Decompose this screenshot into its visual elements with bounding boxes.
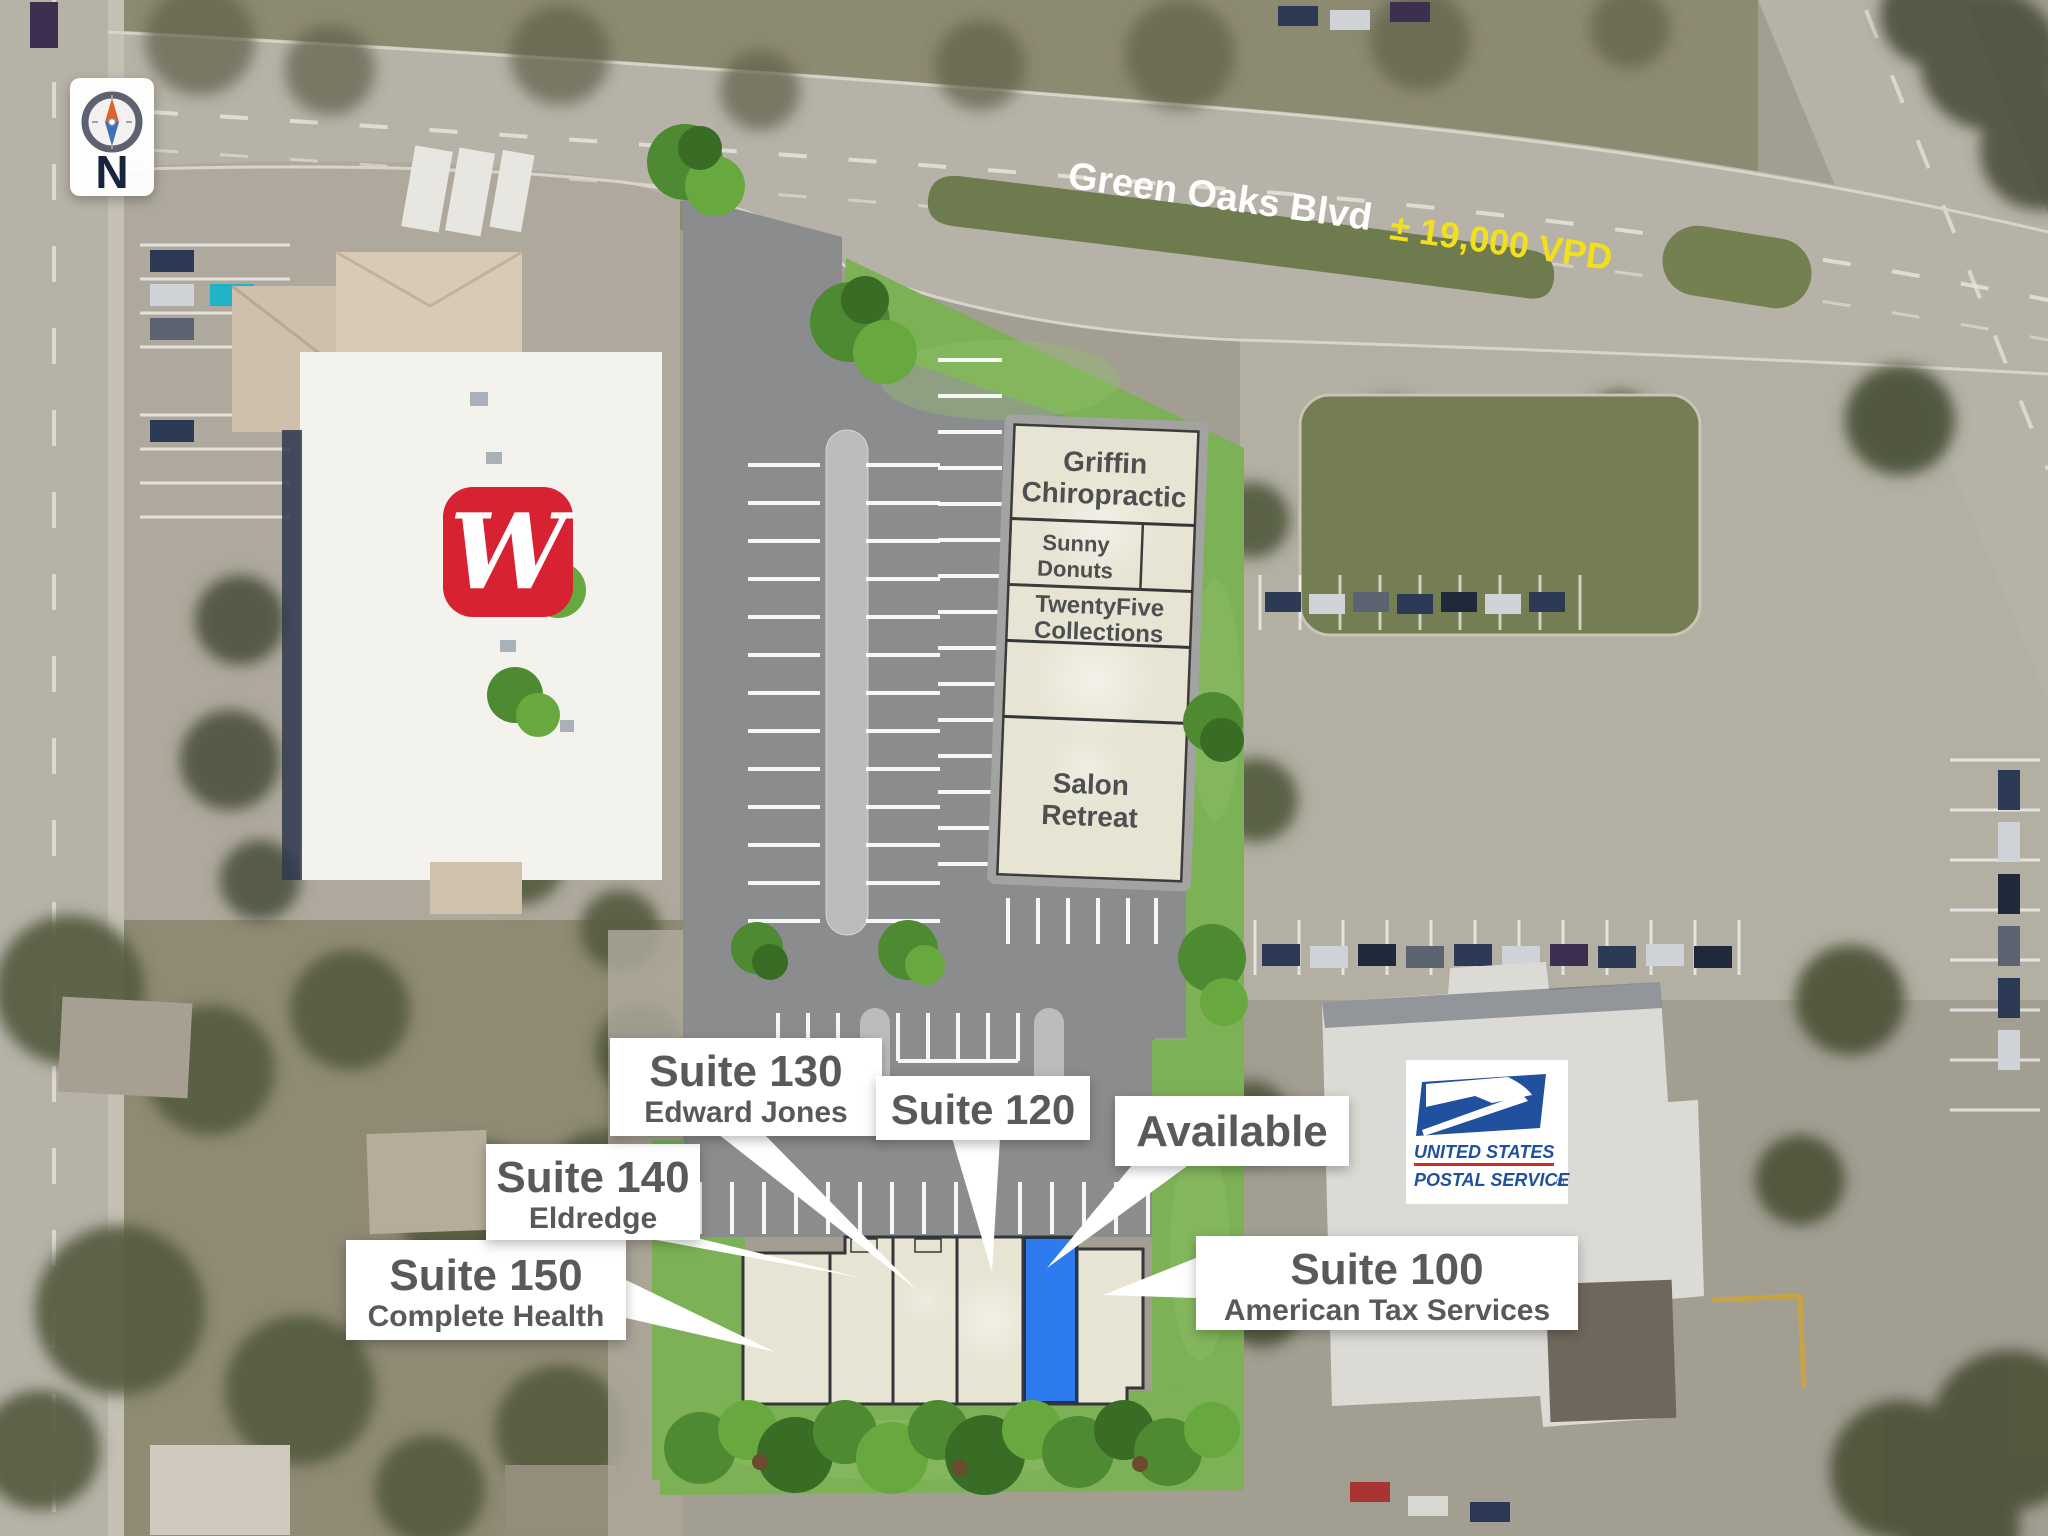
unit-label-sunny-2: Donuts <box>1037 556 1114 584</box>
callout-suite-100-tenant: American Tax Services <box>1224 1294 1550 1327</box>
tenant-unit-twentyfive: TwentyFive Collections <box>1034 590 1165 648</box>
callout-suite-130-tenant: Edward Jones <box>644 1096 847 1129</box>
compass: N <box>70 78 154 198</box>
callout-suite-150-tenant: Complete Health <box>368 1300 605 1333</box>
building-shadow <box>282 430 302 880</box>
callout-suite-140-title: Suite 140 <box>496 1153 689 1202</box>
parking-island-center <box>826 430 868 935</box>
callout-suite-100-title: Suite 100 <box>1290 1245 1483 1294</box>
usps-logo: UNITED STATES POSTAL SERVICE ® <box>1406 1060 1570 1204</box>
callout-suite-150: Suite 150 Complete Health <box>346 1240 626 1340</box>
unit-label-griffin-2: Chiropractic <box>1021 476 1187 513</box>
compass-north-letter: N <box>95 146 128 198</box>
usps-red-rule <box>1414 1163 1554 1166</box>
tenant-unit-salon: Salon Retreat <box>1041 767 1140 834</box>
callout-available: Available <box>1115 1096 1349 1166</box>
trucks <box>401 145 534 236</box>
unit-label-sunny-1: Sunny <box>1042 530 1111 558</box>
callout-suite-140: Suite 140 Eldredge <box>486 1144 700 1240</box>
tenant-building: Griffin Chiropractic Sunny Donuts Twenty… <box>987 414 1209 891</box>
unit-label-twentyfive-2: Collections <box>1034 616 1164 648</box>
unit-label-salon-1: Salon <box>1052 767 1129 801</box>
usps-eagle-icon <box>1416 1074 1546 1136</box>
tenant-unit-sunny-donuts: Sunny Donuts <box>1037 530 1115 584</box>
available-suite-unit <box>1025 1238 1076 1402</box>
callout-suite-120: Suite 120 <box>876 1076 1090 1140</box>
strip-building <box>743 1237 1143 1404</box>
site-plan-map: Griffin Chiropractic Sunny Donuts Twenty… <box>0 0 2048 1536</box>
unit-label-griffin-1: Griffin <box>1063 445 1148 479</box>
callout-suite-150-title: Suite 150 <box>389 1251 582 1300</box>
walgreens-logo: W <box>443 487 576 617</box>
compass-rose-icon <box>85 95 139 149</box>
usps-text-line2: POSTAL SERVICE <box>1414 1170 1570 1190</box>
callout-suite-120-title: Suite 120 <box>891 1086 1075 1133</box>
callout-suite-140-tenant: Eldredge <box>529 1202 657 1235</box>
walgreens-w-monogram: W <box>450 490 576 613</box>
unit-label-salon-2: Retreat <box>1041 799 1139 834</box>
usps-text-line1: UNITED STATES <box>1414 1142 1554 1162</box>
usps-registered-mark: ® <box>1556 1177 1564 1189</box>
callout-suite-130: Suite 130 Edward Jones <box>610 1038 882 1136</box>
callout-suite-130-title: Suite 130 <box>649 1047 842 1096</box>
callout-available-title: Available <box>1136 1107 1328 1156</box>
callout-suite-100: Suite 100 American Tax Services <box>1196 1236 1578 1330</box>
